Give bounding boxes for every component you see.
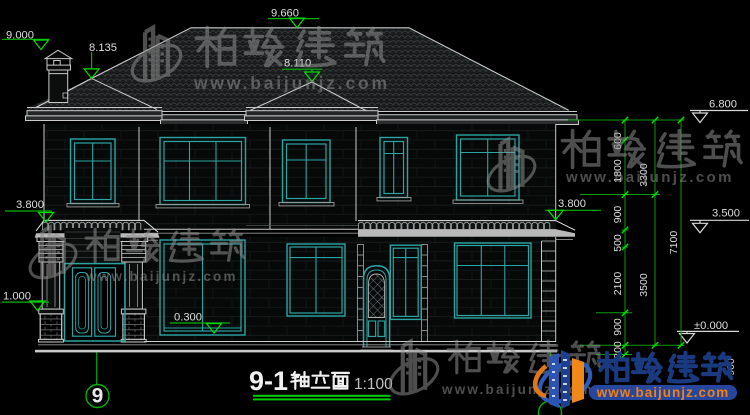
svg-text:900: 900 — [612, 318, 624, 336]
svg-text:1:100: 1:100 — [354, 376, 393, 393]
svg-text:3500: 3500 — [638, 273, 650, 297]
svg-text:9: 9 — [92, 385, 104, 408]
svg-text:0.300: 0.300 — [174, 312, 202, 324]
svg-text:1.000: 1.000 — [3, 291, 31, 303]
svg-text:500: 500 — [612, 234, 624, 252]
svg-text:3.800: 3.800 — [16, 199, 44, 211]
svg-text:www.baijunjz.com: www.baijunjz.com — [85, 269, 238, 284]
svg-text:2100: 2100 — [612, 272, 624, 296]
svg-text:www.baijunjz.com: www.baijunjz.com — [565, 169, 734, 186]
svg-text:6.800: 6.800 — [709, 99, 737, 111]
svg-text:7100: 7100 — [668, 231, 680, 255]
svg-text:www.baijunjz.com: www.baijunjz.com — [193, 73, 390, 93]
svg-text:8.135: 8.135 — [89, 42, 117, 54]
svg-text:900: 900 — [612, 206, 624, 224]
svg-text:3.500: 3.500 — [712, 208, 740, 220]
svg-text:±0.000: ±0.000 — [694, 320, 728, 332]
svg-text:9-1: 9-1 — [249, 366, 288, 396]
svg-text:www.baijunjz.com: www.baijunjz.com — [596, 385, 730, 400]
svg-text:3.800: 3.800 — [558, 198, 586, 210]
svg-text:www.baijunjz.com: www.baijunjz.com — [441, 382, 594, 397]
